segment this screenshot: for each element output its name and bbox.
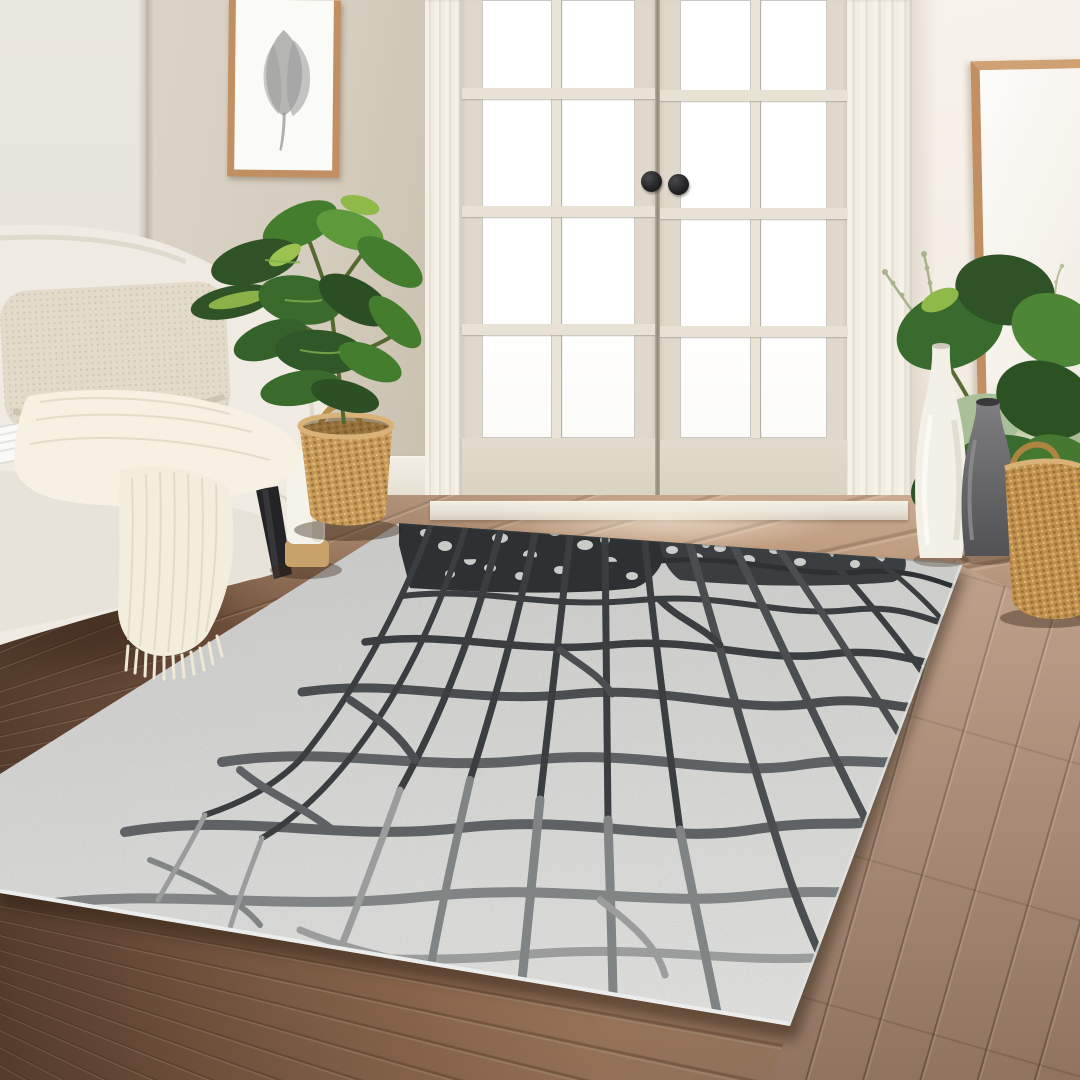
foreground-objects — [0, 0, 1080, 1080]
white-vase — [915, 343, 967, 558]
living-room-photo: { "scene": { "setting_label": "Staged li… — [0, 0, 1080, 1080]
wicker-basket-right — [1000, 445, 1080, 628]
